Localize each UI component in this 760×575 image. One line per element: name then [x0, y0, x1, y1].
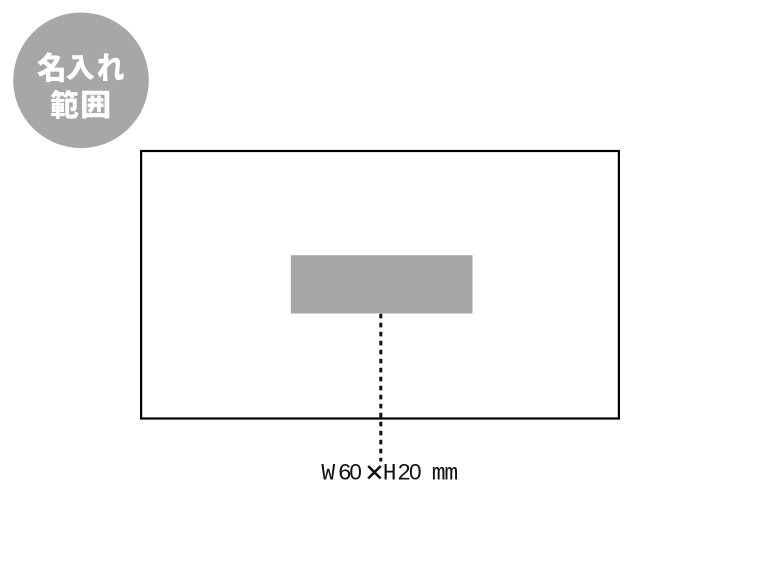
svg-text:0: 0 — [349, 459, 362, 484]
svg-text:m: m — [444, 460, 458, 486]
svg-text:H: H — [383, 460, 397, 486]
svg-text:W: W — [321, 460, 335, 486]
svg-text:0: 0 — [409, 459, 422, 484]
